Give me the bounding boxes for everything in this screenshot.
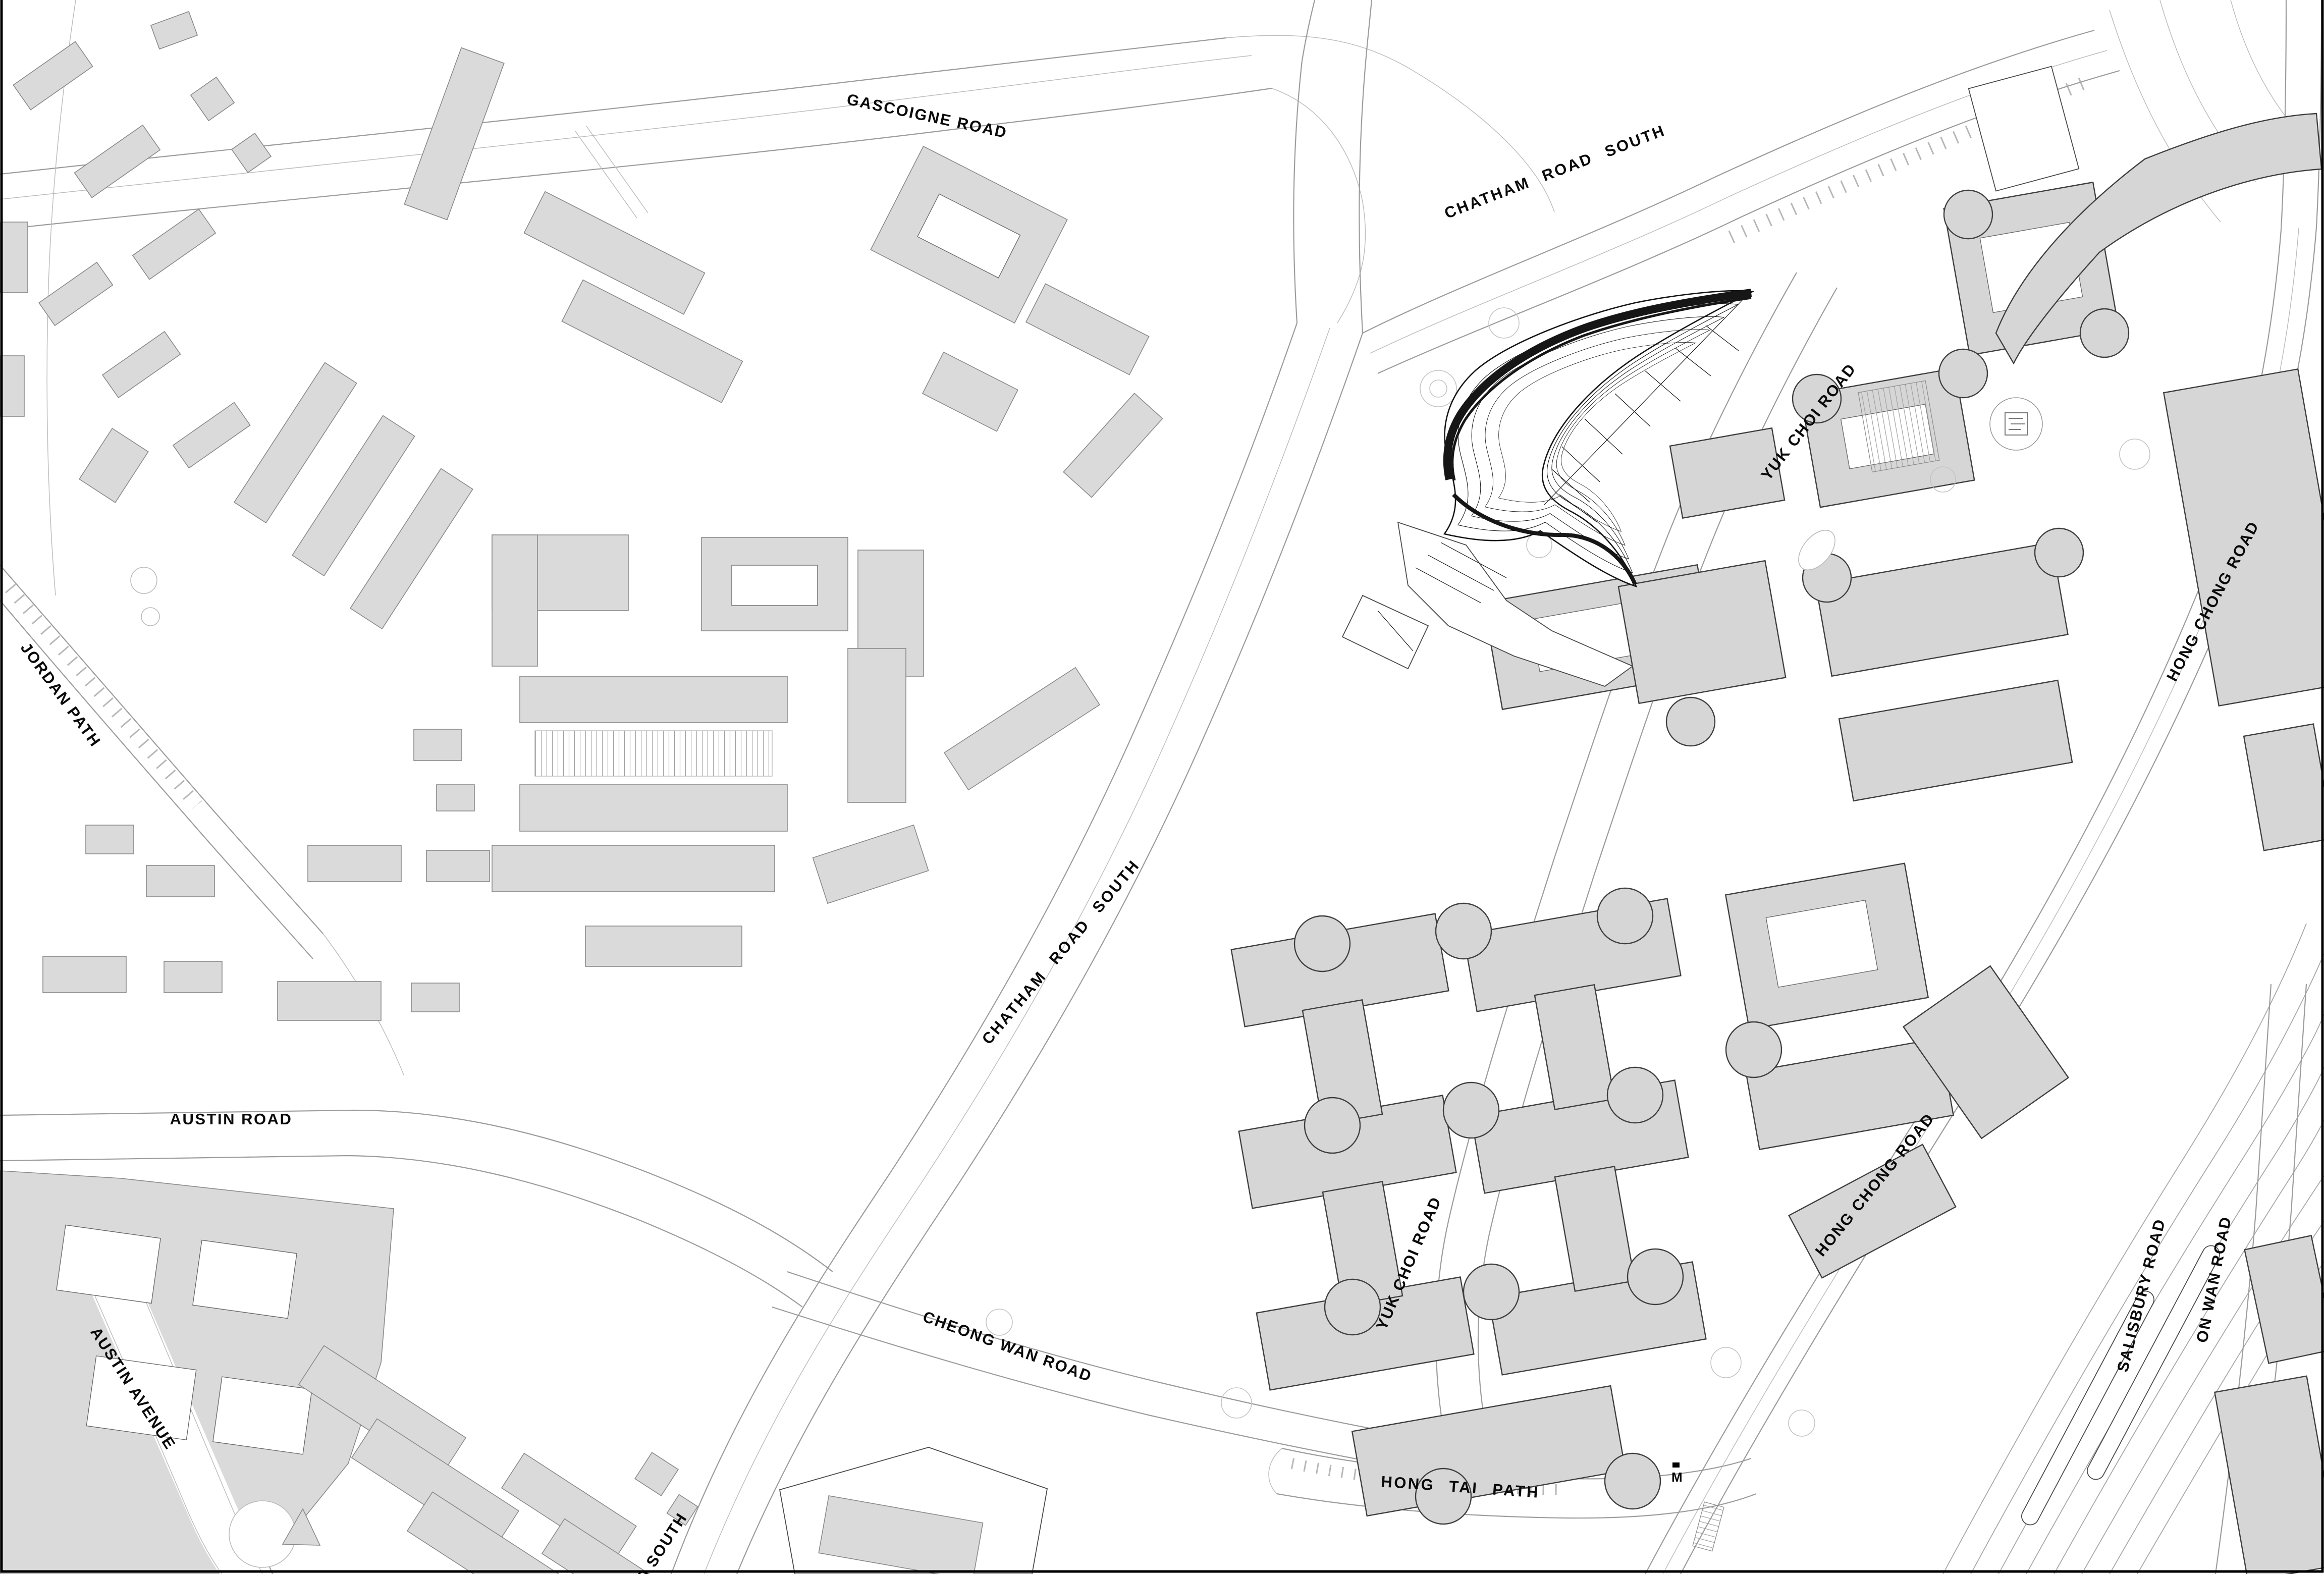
label-chatham-road-south-fragment: D SOUTH: [633, 1509, 691, 1574]
label-cheong-wan-road: CHEONG WAN ROAD: [921, 1308, 1095, 1385]
buildings-west: [0, 12, 1162, 1020]
trees: [986, 308, 2150, 1436]
station-marker: M: [1671, 1462, 1683, 1485]
buildings-southwest: [0, 1171, 1047, 1574]
label-austin-road: AUSTIN ROAD: [170, 1110, 293, 1128]
label-jordan-path: JORDAN PATH: [17, 639, 104, 750]
site-plan-map: GASCOIGNE ROAD CHATHAM ROAD SOUTH CHATHA…: [0, 0, 2324, 1574]
station-marker-label: M: [1671, 1470, 1683, 1485]
label-chatham-road-south-top: CHATHAM ROAD SOUTH: [1442, 121, 1668, 222]
label-gascoigne-road: GASCOIGNE ROAD: [845, 90, 1009, 142]
label-chatham-road-south-mid: CHATHAM ROAD SOUTH: [979, 856, 1144, 1048]
maze-pavement-icon: [1990, 398, 2042, 450]
